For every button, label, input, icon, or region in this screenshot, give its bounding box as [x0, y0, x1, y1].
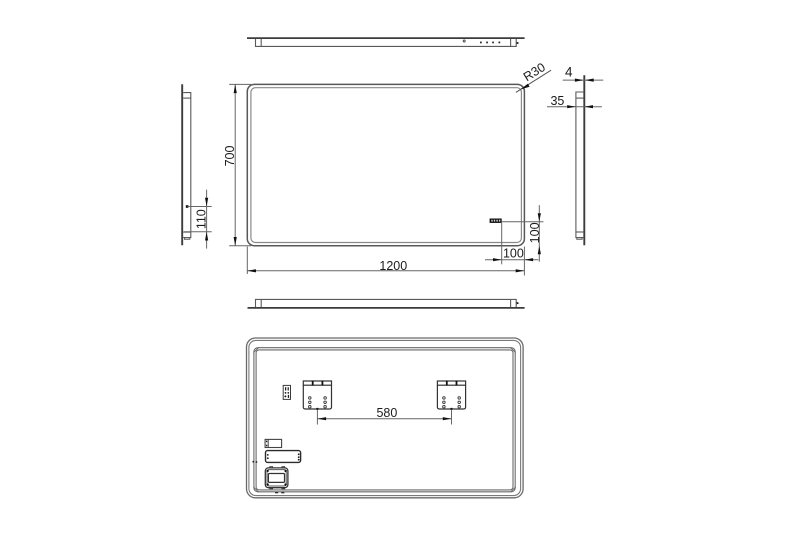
- svg-text:580: 580: [376, 406, 397, 420]
- svg-text:700: 700: [223, 146, 237, 167]
- svg-text:35: 35: [550, 94, 564, 108]
- svg-text:100: 100: [503, 247, 524, 261]
- svg-text:110: 110: [195, 209, 209, 229]
- svg-text:100: 100: [528, 222, 542, 243]
- svg-text:1200: 1200: [379, 259, 407, 273]
- svg-text:4: 4: [565, 65, 573, 80]
